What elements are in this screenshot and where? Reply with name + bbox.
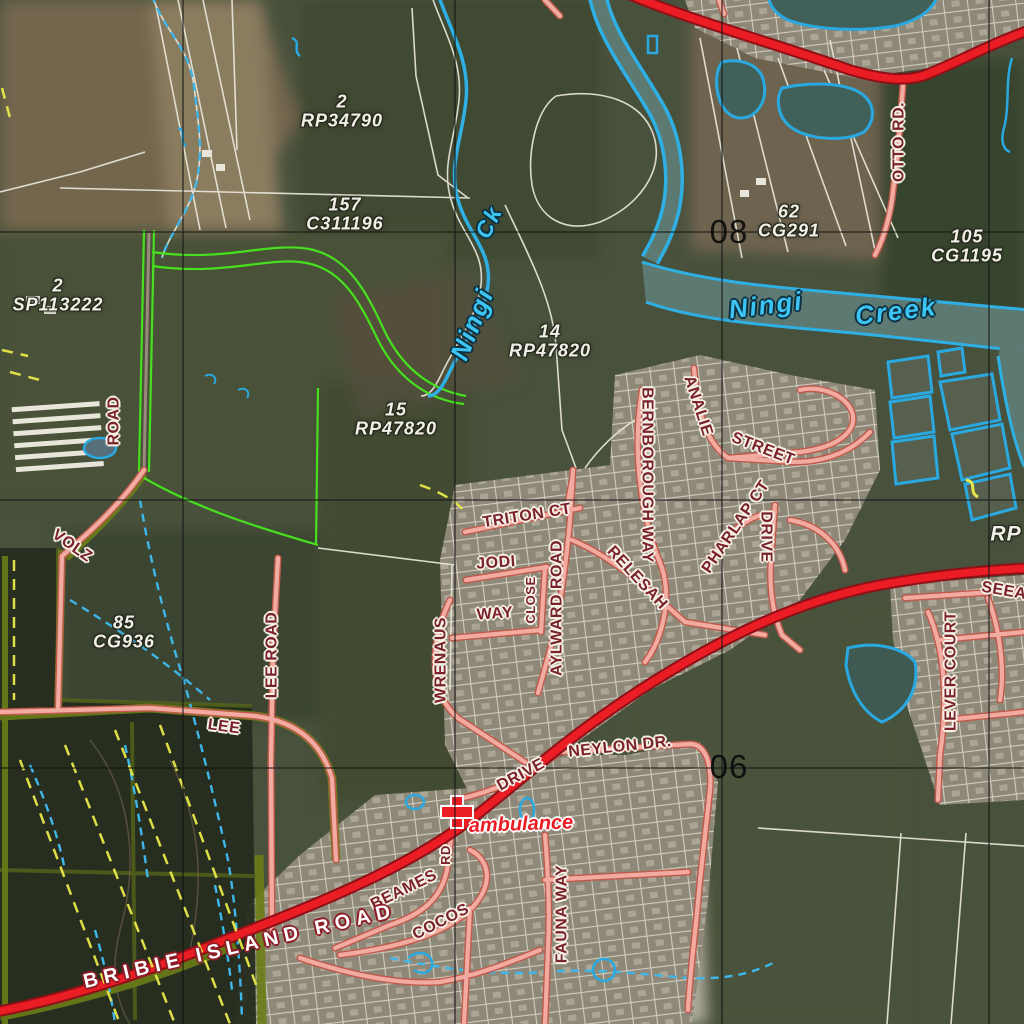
map-graphics	[0, 0, 1024, 1024]
map-canvas[interactable]: 08 06 2RP34790 157C311196 2SP113222 14RP…	[0, 0, 1024, 1024]
